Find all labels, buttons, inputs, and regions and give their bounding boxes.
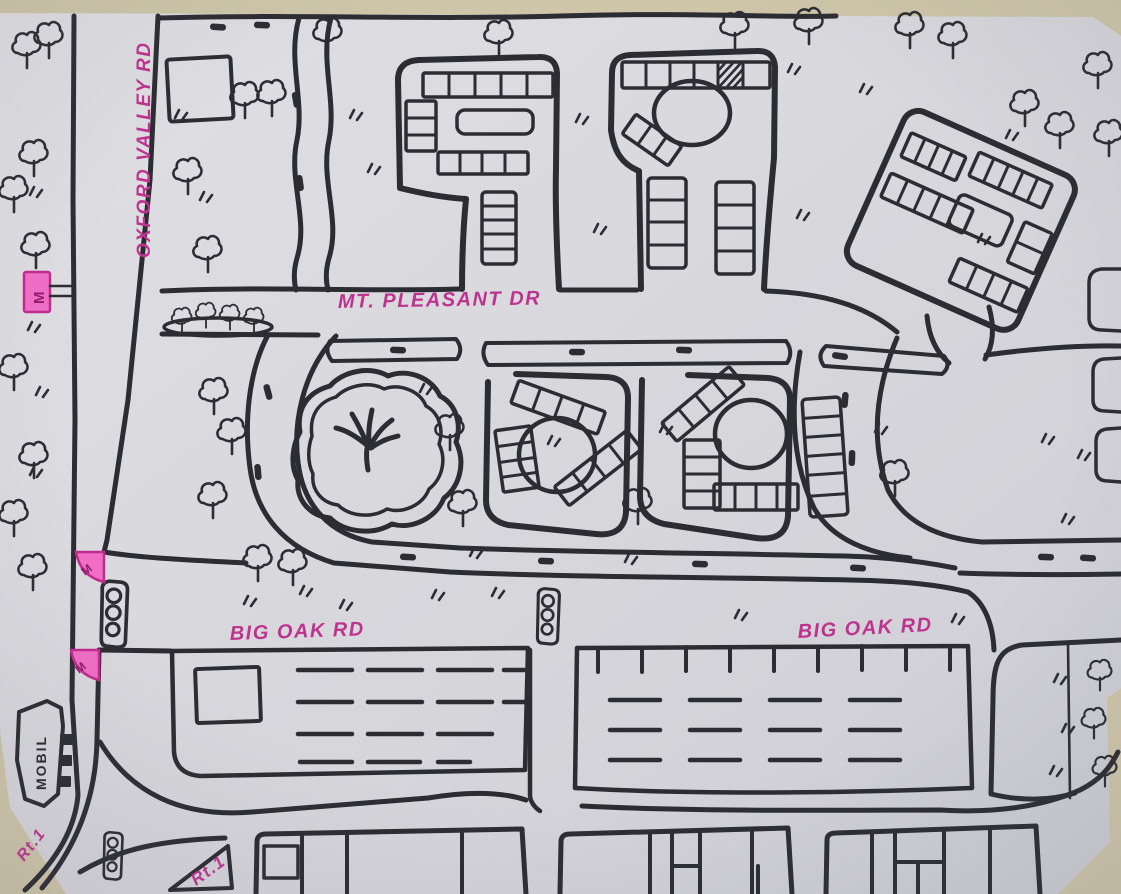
gas-pumps (58, 734, 73, 787)
label-big-oak-rd-west: BIG OAK RD (229, 618, 365, 645)
label-oxford-valley-rd: OXFORD VALLEY RD (134, 42, 155, 258)
label-mobil: MOBIL (33, 735, 49, 790)
hand-drawn-map: M M M (0, 0, 1121, 894)
m-marker-label: M (31, 292, 48, 305)
label-mt-pleasant-dr: MT. PLEASANT DR (338, 287, 542, 313)
paper-sheet (0, 13, 1121, 894)
map-canvas: M M M (0, 0, 1121, 894)
